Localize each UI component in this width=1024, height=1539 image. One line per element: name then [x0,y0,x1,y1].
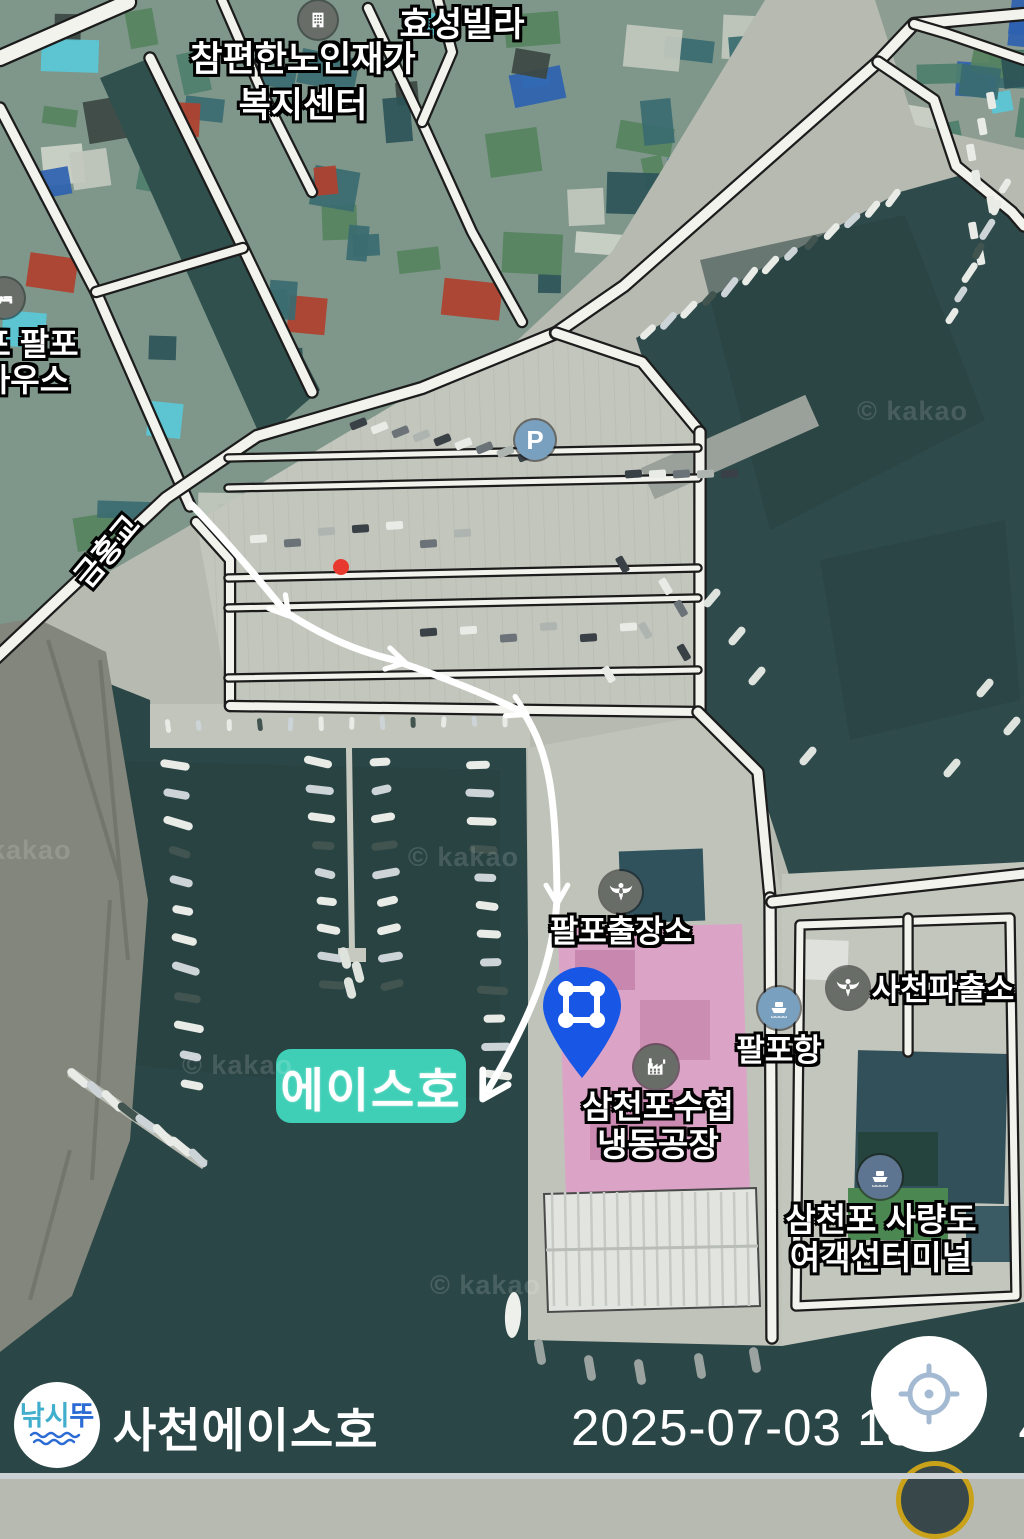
label-ferry-terminal-1: 삼천포 사량도 [785,1203,976,1238]
label-fisheries-coop-2: 냉동공장 [597,1128,718,1163]
logo-text-part2: 뚜 [69,1401,94,1431]
police-eagle-icon [835,975,861,1001]
pin-icon [537,966,627,1080]
label-fisheries-coop-1: 삼천포수협 [582,1090,734,1125]
parking-poi-marker[interactable]: P [515,420,555,460]
fishing-app-logo: 낚시뚜 [14,1382,100,1468]
boat-name-highlight: 에이스호 [276,1049,466,1123]
label-welfare-center-1: 참편한노인재가 [190,42,415,79]
kakao-watermark: kakao [0,835,72,866]
location-pin-marker[interactable] [537,966,627,1080]
ferry-poi-marker[interactable] [858,1155,902,1199]
logo-waves-icon [28,1430,86,1448]
building-poi-marker[interactable] [299,1,337,39]
factory-icon [643,1054,669,1080]
label-palpo-port: 팔포항 [736,1035,822,1068]
label-sacheon-police-box: 사천파출소 [872,974,1015,1007]
factory-poi-marker[interactable] [634,1045,678,1089]
police-poi-marker-palpo[interactable] [600,871,642,913]
police-eagle-icon [608,879,634,905]
boat-name-text: 에이스호 [281,1052,462,1121]
parking-letter: P [526,425,543,456]
kakao-watermark: © kakao [182,1050,293,1081]
kakao-watermark: © kakao [408,842,519,873]
crosshair-icon [895,1360,963,1428]
label-guesthouse-2: 하우스 [0,364,69,398]
kakao-watermark: © kakao [857,396,968,427]
label-guesthouse-1: 포 팔포 [0,328,79,362]
building-icon [307,9,329,31]
label-palpo-branch-office: 팔포출장소 [550,916,693,949]
gps-locate-button[interactable] [871,1336,987,1452]
timestamp-suffix: 4 [1018,1399,1024,1456]
ship-icon [767,996,791,1020]
label-welfare-center-2: 복지센터 [239,88,368,125]
label-ferry-terminal-2: 여객선터미널 [790,1241,972,1276]
police-poi-marker-sacheon[interactable] [827,967,869,1009]
logo-text-part1: 낚시 [20,1401,70,1431]
port-poi-marker[interactable] [758,987,800,1029]
kakao-watermark: © kakao [430,1270,541,1301]
bottom-edge-strip [0,1473,1024,1479]
ferry-icon [868,1165,892,1189]
boat-title: 사천에이스호 [113,1392,378,1461]
lodging-icon [0,287,15,309]
label-hyoseong-villa: 효성빌라 [399,8,524,44]
red-dot-marker [333,559,349,575]
logo-text: 낚시뚜 [20,1403,95,1430]
warehouse [544,1188,760,1312]
